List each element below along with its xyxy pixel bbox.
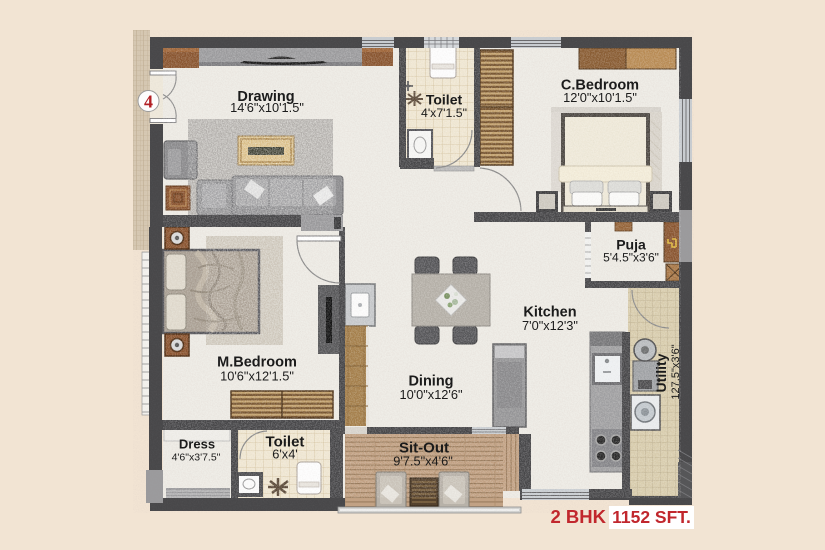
svg-text:7'0"x12'3": 7'0"x12'3" xyxy=(522,318,578,333)
svg-text:1152 SFT.: 1152 SFT. xyxy=(612,507,691,527)
svg-text:9'7.5"x4'6": 9'7.5"x4'6" xyxy=(393,454,453,469)
svg-text:6'x4': 6'x4' xyxy=(272,447,298,462)
svg-text:127.5"x3'6": 127.5"x3'6" xyxy=(670,344,682,399)
svg-text:Utility: Utility xyxy=(653,353,669,392)
svg-text:12'0"x10'1.5": 12'0"x10'1.5" xyxy=(563,90,637,105)
svg-text:10'6"x12'1.5": 10'6"x12'1.5" xyxy=(220,369,294,384)
svg-text:2 BHK: 2 BHK xyxy=(550,506,606,527)
svg-text:4: 4 xyxy=(144,92,153,112)
svg-text:4'6"x3'7.5": 4'6"x3'7.5" xyxy=(172,452,221,464)
svg-text:Dress: Dress xyxy=(179,437,215,452)
svg-text:10'0"x12'6": 10'0"x12'6" xyxy=(399,387,462,402)
svg-text:5'4.5"x3'6": 5'4.5"x3'6" xyxy=(603,251,659,265)
svg-text:4'x7'1.5": 4'x7'1.5" xyxy=(421,106,467,120)
svg-text:14'6"x10'1.5": 14'6"x10'1.5" xyxy=(230,100,304,115)
